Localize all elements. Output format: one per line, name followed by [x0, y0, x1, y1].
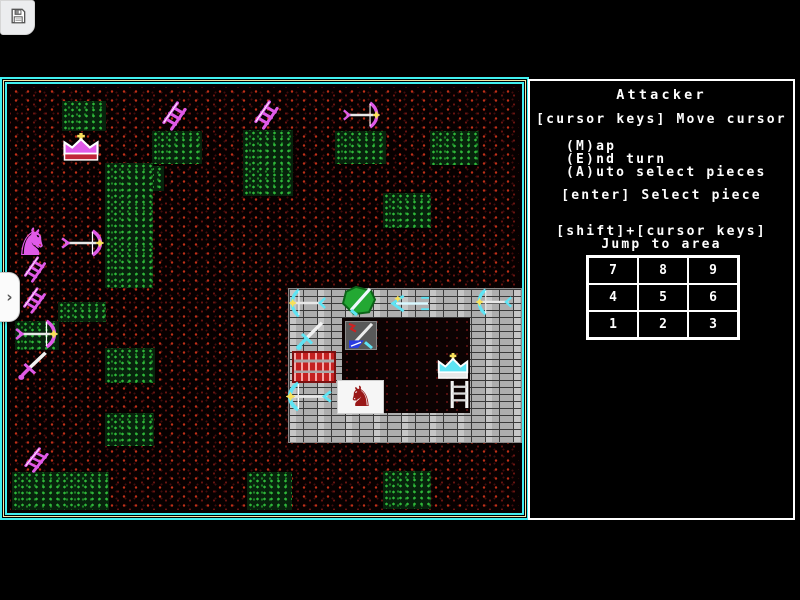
- piece-crossbow-left-defender[interactable]: [289, 288, 327, 318]
- jump-cell-7: 7: [588, 257, 638, 284]
- hint-jump-label: Jump to area: [530, 237, 793, 252]
- jump-cell-3: 3: [688, 311, 738, 338]
- piece-gate-defender[interactable]: [292, 351, 336, 383]
- piece-arrow-left-defender[interactable]: [387, 294, 432, 313]
- piece-ladder-attacker[interactable]: [20, 287, 49, 314]
- piece-crown-attacker[interactable]: [59, 132, 103, 163]
- chevron-right-icon: ›: [6, 288, 12, 306]
- terrain-green-patch: [335, 131, 386, 164]
- terrain-green-patch: [105, 348, 155, 383]
- save-button[interactable]: [0, 0, 35, 35]
- jump-cell-1: 1: [588, 311, 638, 338]
- piece-crown-defender[interactable]: [434, 352, 472, 381]
- piece-ladder-attacker[interactable]: [21, 256, 49, 283]
- terrain-green-patch: [430, 131, 479, 165]
- piece-crossbow-left-defender[interactable]: [286, 381, 333, 412]
- terrain-green-patch: [383, 471, 431, 509]
- terrain-green-patch: [12, 472, 109, 510]
- map-layer: ♞: [10, 87, 519, 510]
- hint-move-cursor: [cursor keys] Move cursor: [530, 112, 793, 127]
- piece-horse-tile-defender[interactable]: ♞: [337, 380, 384, 414]
- jump-cell-4: 4: [588, 284, 638, 311]
- piece-crossbow-left-defender[interactable]: [476, 288, 513, 316]
- terrain-green-patch: [383, 193, 431, 228]
- game-screen[interactable]: ♞: [0, 77, 529, 520]
- piece-armory-defender[interactable]: [345, 321, 377, 350]
- screen: { "chrome": { "save_button": {"icon": "f…: [0, 0, 800, 600]
- info-panel: Attacker [cursor keys] Move cursor (M)ap…: [528, 79, 795, 520]
- piece-sword-attacker[interactable]: [16, 349, 54, 381]
- panel-title: Attacker: [530, 87, 793, 103]
- piece-ladder-attacker[interactable]: [21, 447, 52, 473]
- sidebar-toggle-button[interactable]: ›: [0, 272, 20, 322]
- floppy-save-icon: [8, 6, 28, 30]
- terrain-green-patch: [243, 130, 293, 196]
- terrain-green-patch: [105, 163, 153, 288]
- piece-crossbow-right-attacker[interactable]: [14, 319, 58, 349]
- hint-select-piece: [enter] Select piece: [530, 188, 793, 203]
- terrain-green-patch: [152, 131, 202, 164]
- piece-shield-defender[interactable]: [339, 285, 379, 318]
- piece-ladder-attacker[interactable]: [251, 100, 282, 130]
- game-border-cyan-inner: ♞: [5, 82, 524, 515]
- piece-crossbow-right-attacker[interactable]: [342, 101, 380, 129]
- jump-cell-6: 6: [688, 284, 738, 311]
- piece-ladder-white-defender[interactable]: [447, 380, 472, 409]
- terrain-green-patch: [58, 302, 106, 322]
- battlefield: ♞: [10, 87, 519, 510]
- terrain-green-patch: [62, 101, 106, 131]
- menu-item-auto-select: (A)uto select pieces: [566, 165, 767, 180]
- jump-cell-9: 9: [688, 257, 738, 284]
- terrain-green-patch: [247, 472, 292, 510]
- jump-cell-5: 5: [638, 284, 688, 311]
- game-border-yellow: ♞: [3, 80, 526, 517]
- piece-sword-defender[interactable]: [294, 319, 330, 351]
- piece-crossbow-right-attacker[interactable]: [60, 229, 104, 257]
- jump-cell-8: 8: [638, 257, 688, 284]
- piece-ladder-attacker[interactable]: [159, 101, 190, 131]
- jump-area-grid: 7 8 9 4 5 6 1 2 3: [586, 255, 740, 340]
- terrain-green-patch: [105, 413, 154, 446]
- jump-cell-2: 2: [638, 311, 688, 338]
